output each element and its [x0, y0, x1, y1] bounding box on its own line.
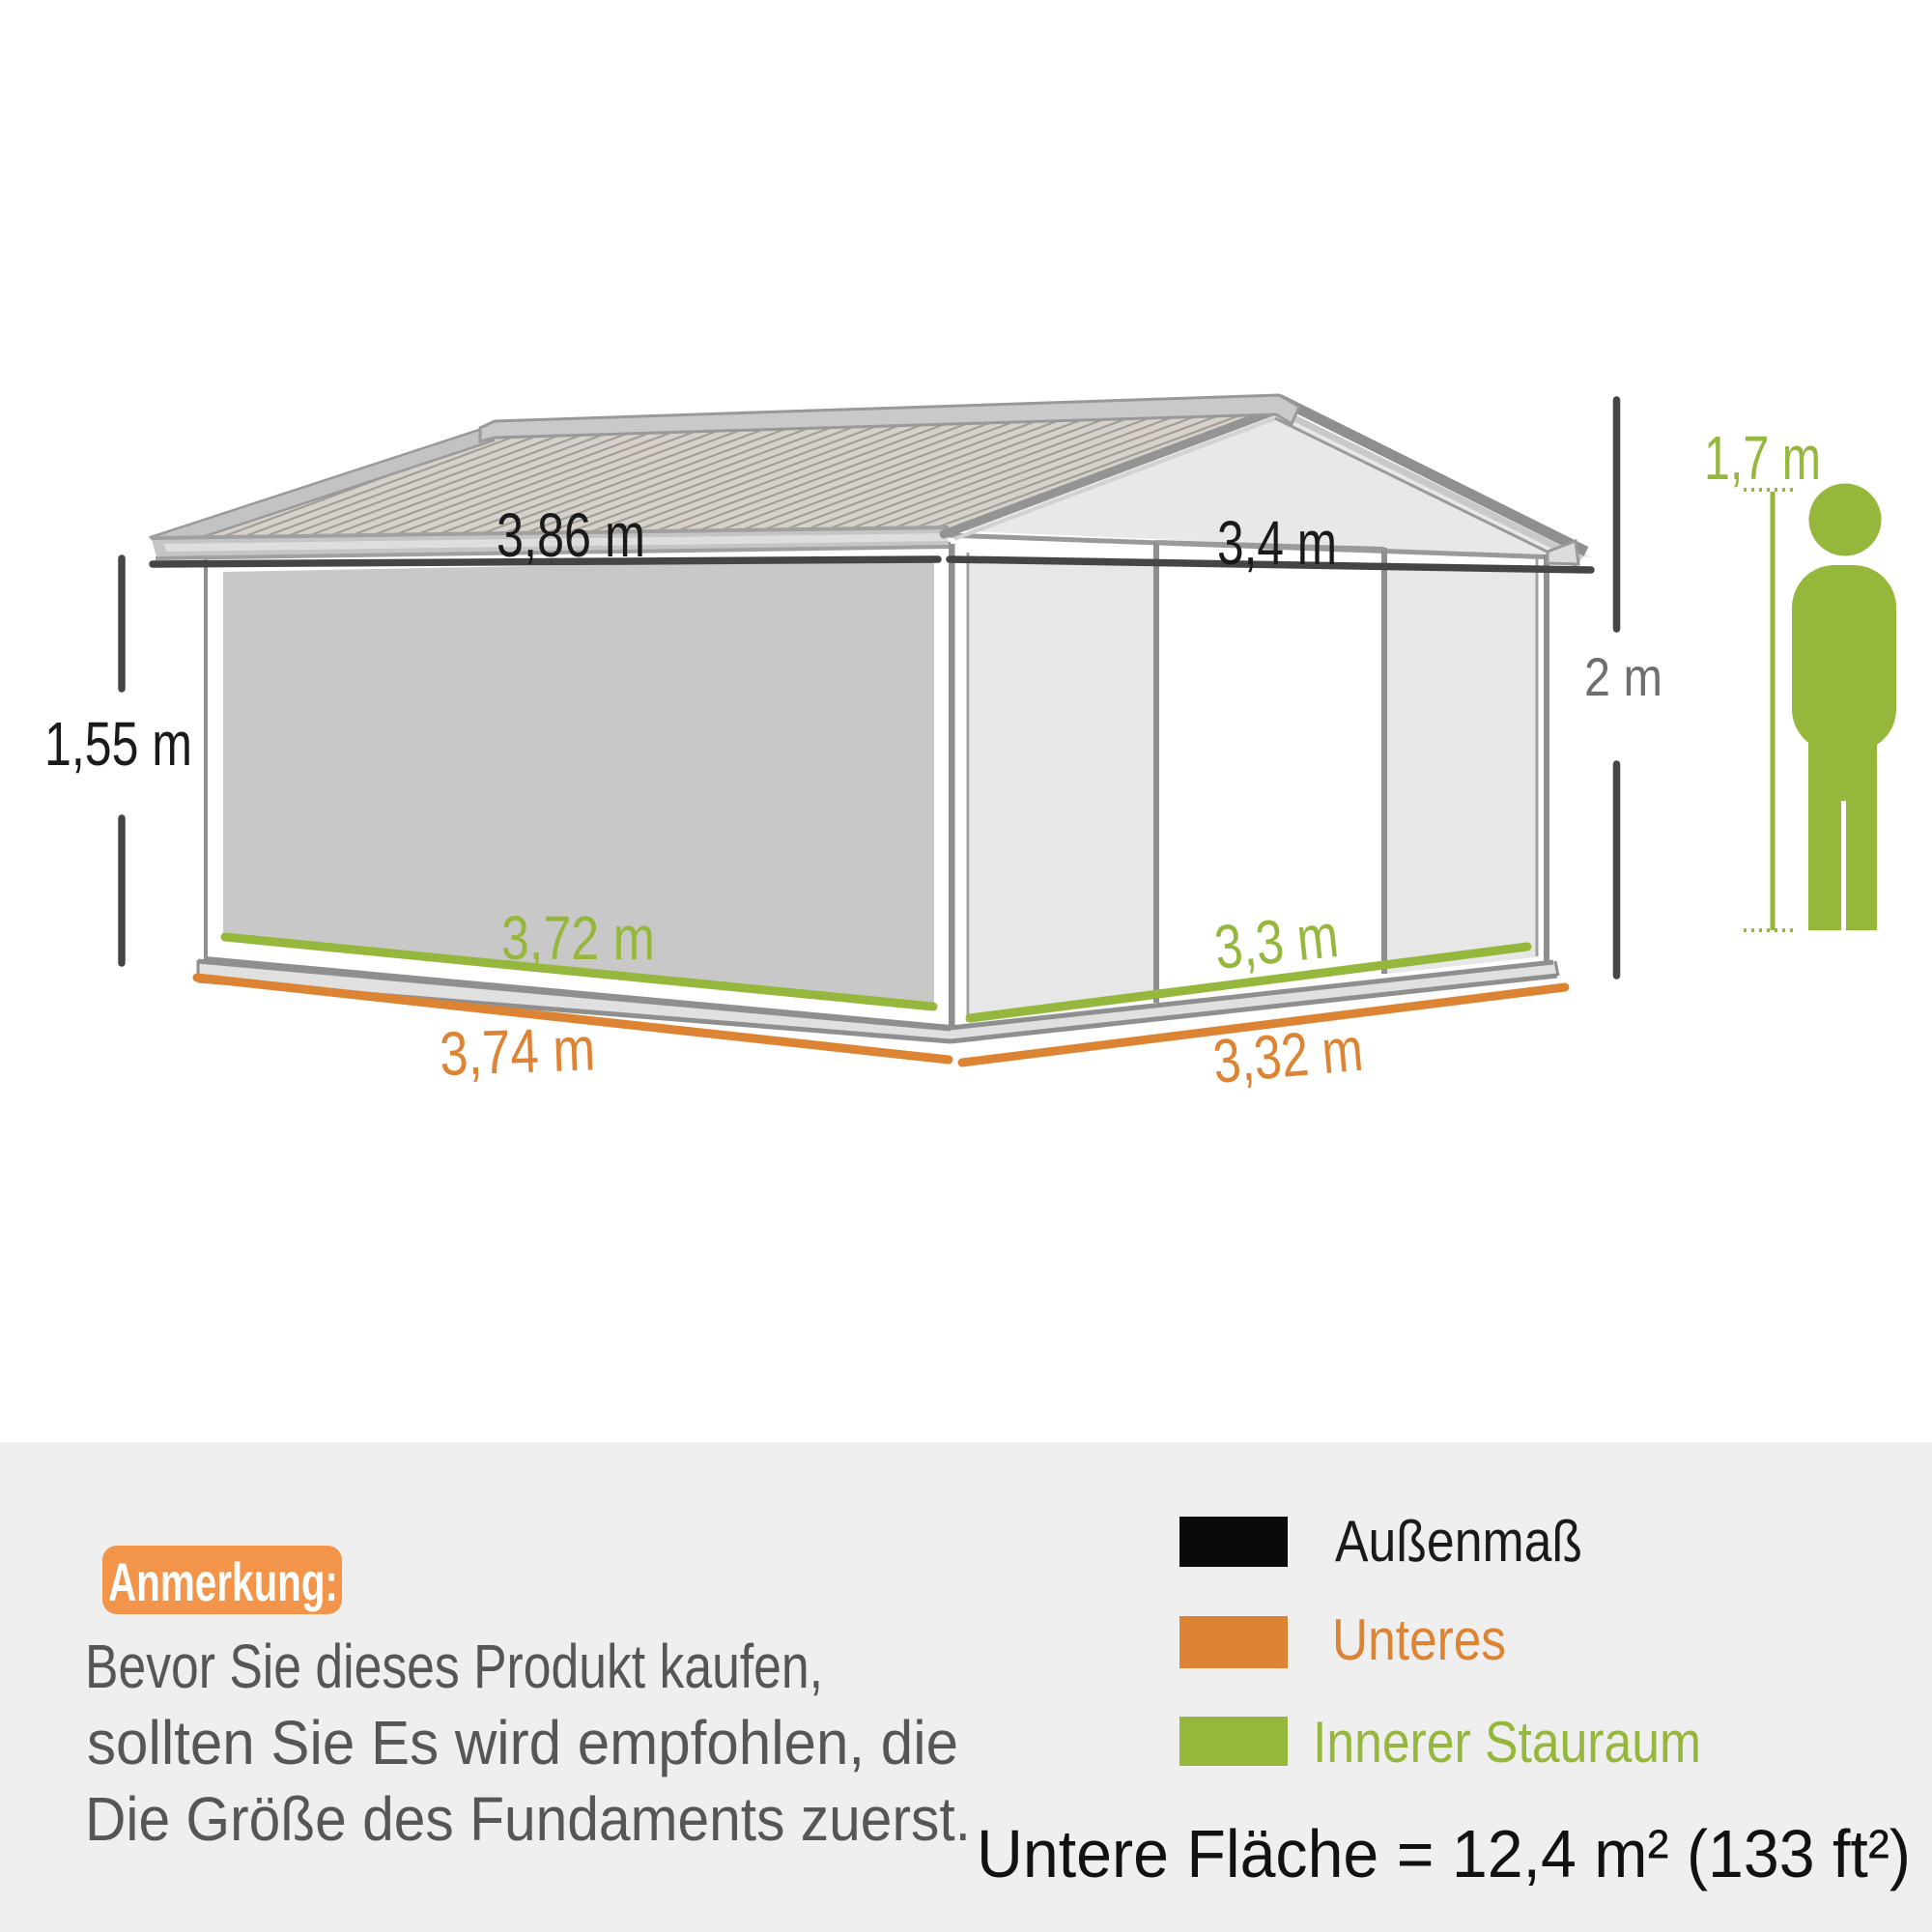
svg-text:Untere Fläche = 12,4 m² (133 f: Untere Fläche = 12,4 m² (133 ft²)	[977, 1816, 1911, 1891]
svg-text:3,32 m: 3,32 m	[1210, 1014, 1366, 1096]
svg-text:3,4 m: 3,4 m	[1217, 508, 1337, 578]
svg-text:3,86 m: 3,86 m	[497, 500, 645, 570]
svg-text:1,7 m: 1,7 m	[1704, 423, 1821, 493]
svg-text:3,72 m: 3,72 m	[501, 903, 655, 973]
svg-text:Bevor Sie dieses Produkt kaufe: Bevor Sie dieses Produkt kaufen,	[85, 1632, 823, 1701]
svg-text:Anmerkung:: Anmerkung:	[108, 1551, 338, 1612]
svg-text:Innerer Stauraum: Innerer Stauraum	[1313, 1710, 1701, 1775]
svg-text:Unteres: Unteres	[1332, 1607, 1506, 1672]
svg-text:1,55 m: 1,55 m	[44, 709, 192, 779]
svg-text:3,74 m: 3,74 m	[439, 1013, 596, 1089]
svg-text:Außenmaß: Außenmaß	[1335, 1509, 1582, 1574]
svg-text:3,3 m: 3,3 m	[1211, 900, 1342, 982]
svg-text:sollten Sie Es wird empfohlen,: sollten Sie Es wird empfohlen, die	[87, 1708, 958, 1777]
svg-text:Die Größe des Fundaments zuers: Die Größe des Fundaments zuerst.	[85, 1784, 971, 1854]
svg-text:2 m: 2 m	[1584, 646, 1662, 707]
